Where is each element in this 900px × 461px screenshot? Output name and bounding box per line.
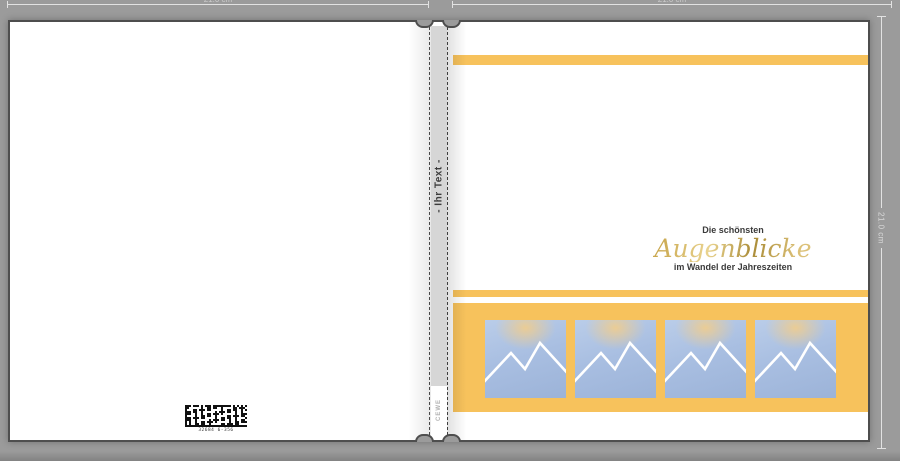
- photo-placeholder-row: [485, 320, 836, 398]
- mountains-icon: [755, 320, 836, 398]
- cewe-logo: CEWE: [436, 399, 442, 421]
- spine-fold-line-left: [429, 22, 430, 440]
- mountains-icon: [485, 320, 566, 398]
- editor-canvas: { "rulers": { "top_left_label": "21.0 cm…: [0, 0, 900, 461]
- spine-text-placeholder[interactable]: - Ihr Text -: [434, 159, 445, 213]
- front-cover-top-band: [453, 55, 868, 65]
- barcode: 32684 6-356: [185, 405, 247, 433]
- spine-notch-bottom-right: [442, 434, 461, 442]
- spine-notch-bottom-left: [415, 434, 434, 442]
- mountains-icon: [665, 320, 746, 398]
- book-cover-spread: 32684 6-356 - Ihr Text - CEWE Die schöns…: [8, 20, 870, 442]
- bottom-shade: [0, 451, 900, 461]
- cover-title-line3: im Wandel der Jahreszeiten: [653, 262, 813, 272]
- back-cover-page[interactable]: [10, 22, 430, 440]
- spine-shadow-left: [408, 22, 431, 440]
- front-cover-mid-band: [453, 290, 868, 297]
- spine-fold-line-right: [447, 22, 448, 440]
- cover-title-script: Augenblicke: [653, 235, 813, 262]
- mountains-icon: [575, 320, 656, 398]
- top-ruler-left-label: 21.0 cm: [204, 0, 232, 4]
- photo-placeholder[interactable]: [665, 320, 746, 398]
- photo-placeholder[interactable]: [575, 320, 656, 398]
- right-ruler-label: 21.0 cm: [877, 208, 886, 248]
- front-cover-main-band: [453, 303, 868, 412]
- datamatrix-barcode-icon: [185, 405, 247, 427]
- photo-placeholder[interactable]: [485, 320, 566, 398]
- photo-placeholder[interactable]: [755, 320, 836, 398]
- barcode-caption: 32684 6-356: [185, 428, 247, 433]
- top-ruler-right-label: 21.0 cm: [658, 0, 686, 4]
- cover-title-block[interactable]: Die schönsten Augenblicke im Wandel der …: [653, 225, 813, 272]
